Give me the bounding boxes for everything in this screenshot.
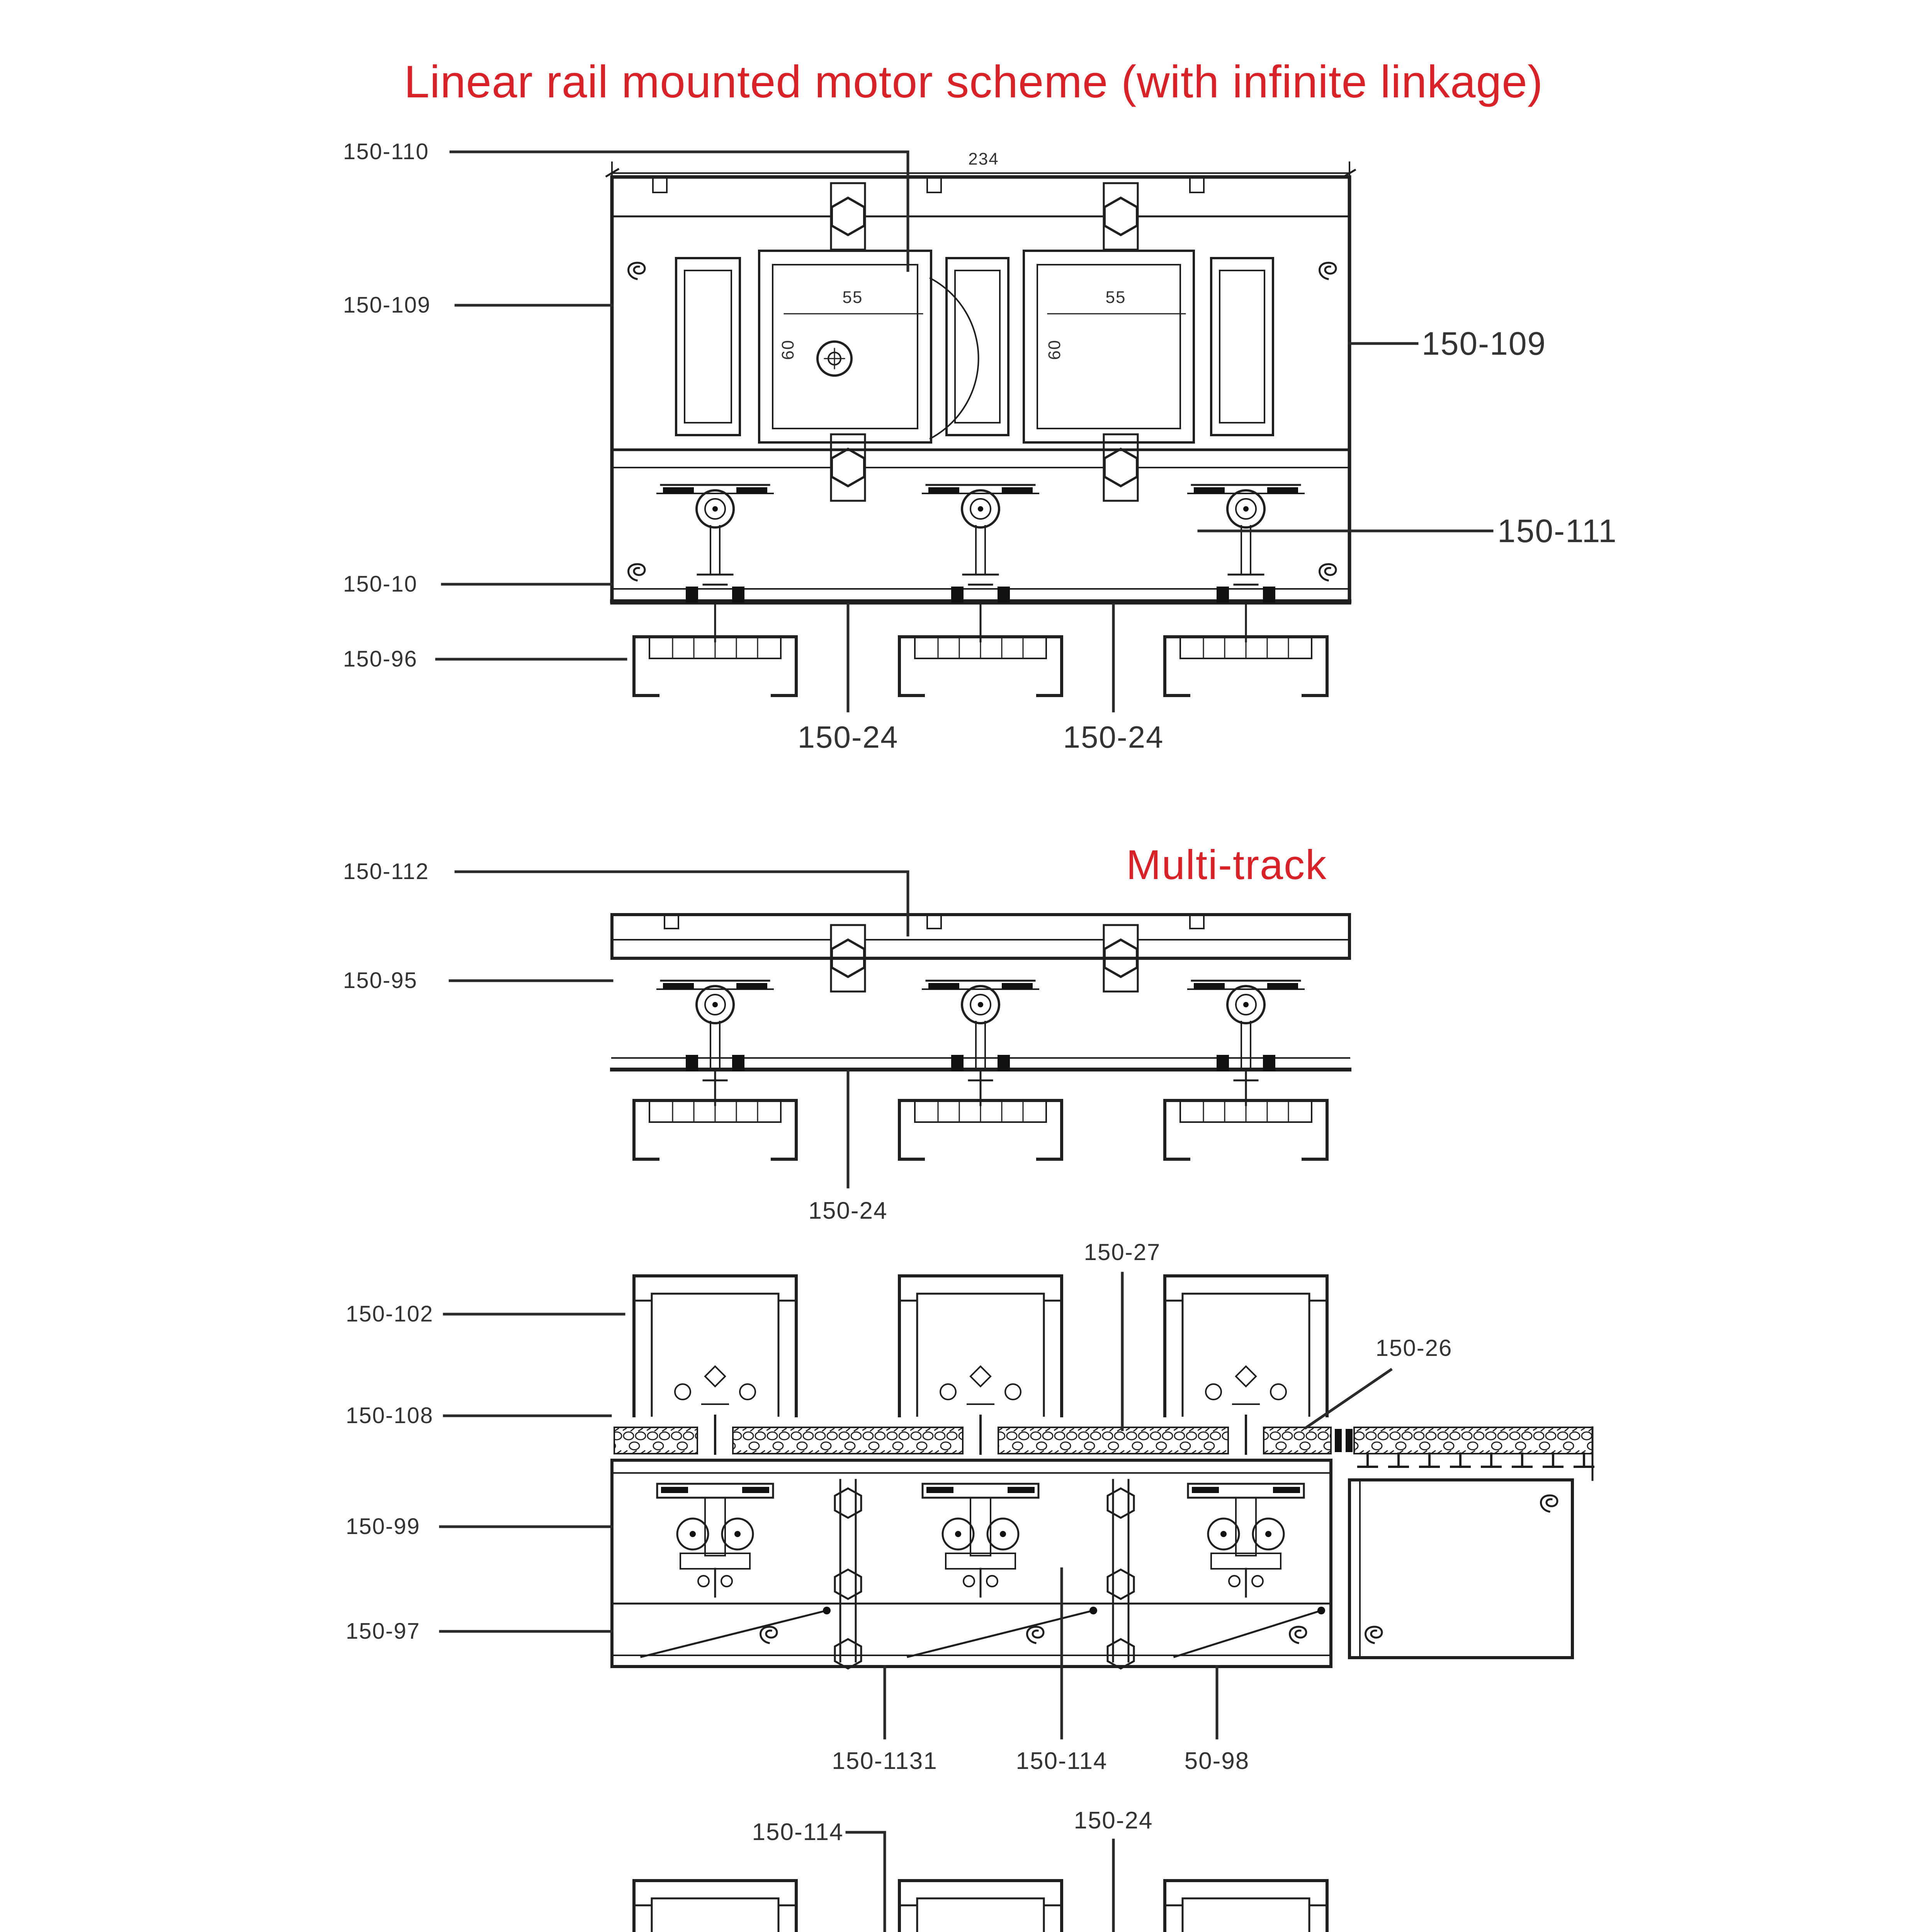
callout-150-95: 150-95 — [343, 969, 418, 992]
dimension-motor-depth-left: 60 — [780, 340, 797, 360]
dimension-overall-width: 234 — [968, 151, 999, 168]
multi-track-heading: Multi-track — [1126, 844, 1327, 886]
callout-150-24-multitrack: 150-24 — [808, 1199, 887, 1223]
callout-150-99: 150-99 — [346, 1515, 420, 1538]
callout-150-26: 150-26 — [1376, 1337, 1453, 1360]
callout-150-109-left: 150-109 — [343, 294, 431, 316]
callout-150-102: 150-102 — [346, 1303, 433, 1325]
multi-track-drawing — [612, 915, 1349, 1159]
callout-50-98: 50-98 — [1185, 1749, 1250, 1773]
leader-lines — [437, 152, 1492, 1932]
callout-150-108: 150-108 — [346, 1405, 433, 1427]
callout-150-114-upper: 150-114 — [1016, 1749, 1108, 1773]
diagram-line-art — [0, 0, 1917, 1932]
callout-150-109-right: 150-109 — [1422, 327, 1546, 360]
callout-150-97: 150-97 — [346, 1620, 420, 1643]
callout-150-24-right: 150-24 — [1063, 722, 1164, 753]
callout-150-114-lower: 150-114 — [752, 1820, 844, 1844]
callout-150-112: 150-112 — [343, 861, 429, 883]
motor-scheme-drawing — [607, 162, 1355, 696]
callout-150-110: 150-110 — [343, 141, 429, 163]
callout-150-111: 150-111 — [1497, 515, 1617, 547]
lower-track-drawing — [612, 1881, 1557, 1932]
callout-150-10: 150-10 — [343, 573, 418, 595]
callout-150-1131: 150-1131 — [832, 1749, 937, 1773]
dimension-motor-width-left: 55 — [843, 289, 863, 306]
callout-150-96: 150-96 — [343, 648, 418, 670]
dimension-motor-depth-right: 60 — [1046, 340, 1063, 360]
page-title: Linear rail mounted motor scheme (with i… — [404, 59, 1543, 105]
callout-150-27: 150-27 — [1084, 1241, 1161, 1264]
callout-150-24-left: 150-24 — [797, 722, 898, 753]
dimension-motor-width-right: 55 — [1106, 289, 1126, 306]
callout-150-24-lower: 150-24 — [1074, 1809, 1153, 1833]
drawing-canvas: Linear rail mounted motor scheme (with i… — [0, 0, 1917, 1932]
